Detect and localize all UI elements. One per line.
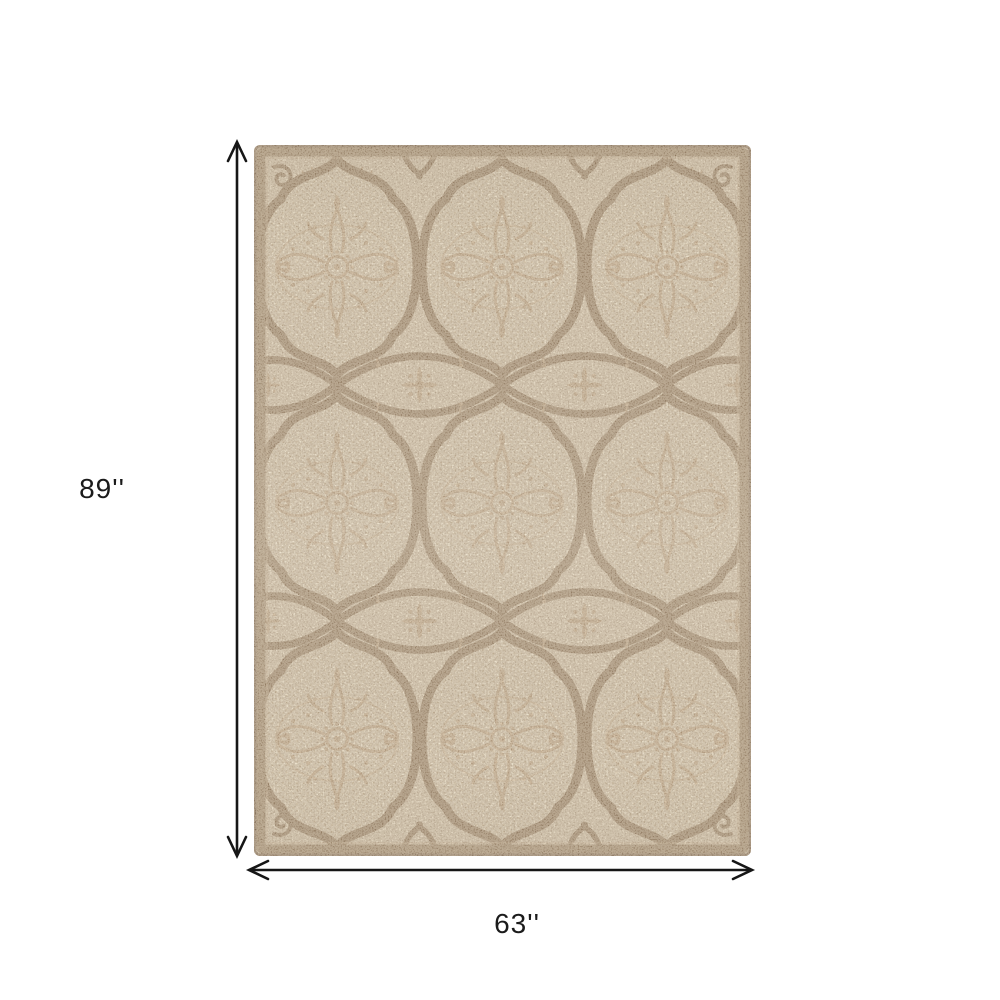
arrowhead-down-icon [228, 837, 246, 856]
height-arrow [228, 142, 246, 856]
rug-image [254, 145, 751, 856]
rug-texture-light [254, 145, 751, 856]
width-dimension-label: 63'' [455, 908, 579, 940]
product-dimension-image: 89'' 63'' [0, 0, 1000, 1000]
arrowhead-left-icon [249, 861, 268, 879]
arrowhead-right-icon [733, 861, 752, 879]
width-arrow [249, 861, 752, 879]
arrowhead-up-icon [228, 142, 246, 161]
height-dimension-label: 89'' [40, 473, 164, 505]
